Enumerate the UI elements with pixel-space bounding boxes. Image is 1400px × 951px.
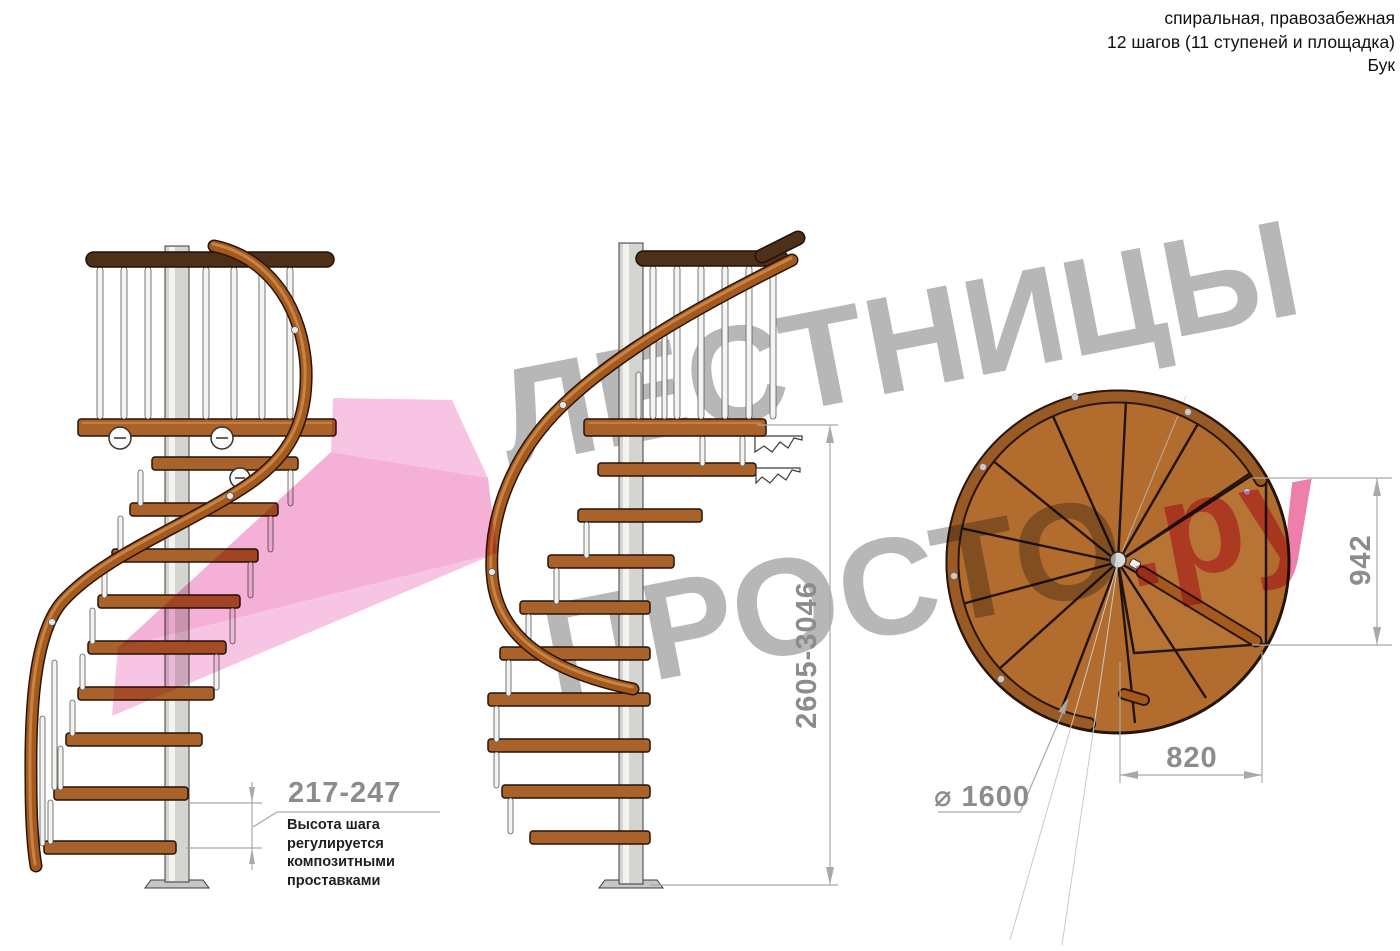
- plan-step-sector-lines: [960, 400, 1258, 723]
- plan-sight-line-2: [1062, 562, 1118, 945]
- middle-floor-bracket-upper: [755, 436, 802, 452]
- arrow-facet-middle: [118, 452, 497, 648]
- left-spiral-handrail: [30, 244, 306, 866]
- arrow-facet-bottom: [112, 553, 497, 716]
- plan-center-pole: [1110, 552, 1126, 568]
- middle-pole-highlight: [623, 244, 629, 883]
- left-platform-balusters: [97, 267, 293, 419]
- left-pole-highlight: [169, 247, 175, 881]
- plan-wood-disc: [947, 391, 1289, 733]
- plan-handrail-outline: [953, 396, 1261, 724]
- watermark: ЛЕСТНИЦЫ ПРОСТО.ру: [0, 0, 1400, 951]
- middle-center-pole: [619, 243, 643, 884]
- elevation-views: [0, 0, 1400, 951]
- plan-straight-rail: [1142, 572, 1256, 641]
- label-platform-width: 820: [1152, 742, 1232, 775]
- watermark-line-1: ЛЕСТНИЦЫ: [487, 198, 1311, 488]
- middle-platform-balusters: [636, 266, 776, 419]
- header-material: Бук: [1107, 54, 1395, 78]
- annotation-line-4: проставками: [287, 872, 395, 891]
- label-total-height: 2605-3046: [791, 570, 823, 740]
- plan-landing-platform: [1118, 468, 1266, 653]
- left-treads: [44, 457, 298, 854]
- annotation-line-3: композитными: [287, 853, 395, 872]
- step-height-annotation: Высота шага регулируется композитными пр…: [287, 816, 395, 890]
- label-platform-depth: 942: [1346, 515, 1376, 605]
- annotation-line-2: регулируется: [287, 835, 395, 854]
- technical-drawing-page: { "header": { "line1": "спиральная, прав…: [0, 0, 1400, 951]
- middle-top-handrail: [636, 251, 788, 266]
- middle-rail-stub: [762, 238, 798, 256]
- arrow-facet-top: [331, 398, 488, 478]
- plan-lower-rail-end: [1124, 694, 1144, 700]
- plan-view: [0, 0, 1400, 951]
- plan-staircase-top-view: [947, 391, 1289, 733]
- middle-elevation-view: [488, 238, 802, 888]
- plan-lower-rail-end-outline: [1124, 694, 1144, 700]
- plan-sight-line-1: [1010, 562, 1118, 940]
- drawing-header: спиральная, правозабежная 12 шагов (11 с…: [1107, 7, 1395, 78]
- plan-construction-line: [1118, 396, 1186, 562]
- middle-platform: [584, 419, 766, 436]
- left-center-pole: [165, 246, 189, 882]
- left-balusters: [40, 470, 293, 846]
- plan-straight-rail-outline: [1142, 572, 1256, 641]
- middle-treads: [488, 463, 756, 844]
- watermark-line-2: ПРОСТО.ру: [532, 436, 1332, 722]
- header-type: спиральная, правозабежная: [1107, 7, 1395, 31]
- left-top-handrail: [86, 252, 334, 267]
- left-platform: [78, 419, 336, 436]
- middle-base-flange: [599, 880, 663, 888]
- watermark-line2-gray: ПРОСТО: [530, 466, 1136, 729]
- plan-rail-spacer: [1129, 558, 1142, 570]
- header-steps: 12 шагов (11 ступеней и площадка): [1107, 31, 1395, 55]
- annotation-line-1: Высота шага: [287, 816, 395, 835]
- middle-balusters: [494, 436, 745, 834]
- middle-spiral-handrail: [489, 258, 793, 689]
- dimension-lines: [0, 0, 1400, 951]
- middle-rail-stub-outline: [762, 238, 798, 256]
- pink-arrow-watermark: [0, 0, 1400, 951]
- left-base-flange: [145, 880, 209, 888]
- middle-floor-bracket-lower: [756, 468, 800, 483]
- watermark-line2-pink: .ру: [1107, 428, 1333, 617]
- label-diameter: ⌀ 1600: [934, 779, 1030, 814]
- label-step-height: 217-247: [288, 777, 401, 810]
- plan-handrail-ring: [953, 396, 1261, 724]
- left-connector-discs: [109, 427, 250, 488]
- plan-rim-baluster-marks: [951, 394, 1251, 683]
